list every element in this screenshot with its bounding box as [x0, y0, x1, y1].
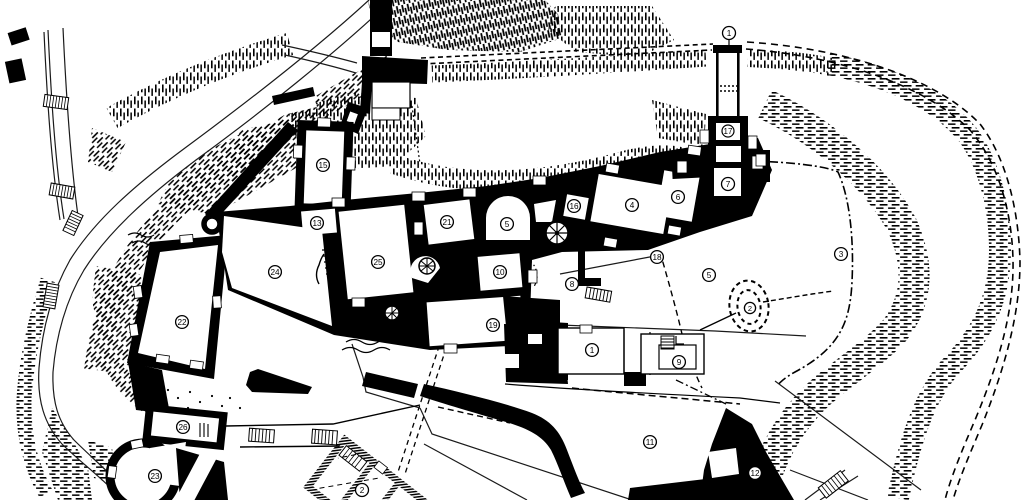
svg-text:26: 26	[178, 423, 188, 432]
svg-text:1: 1	[590, 346, 595, 355]
svg-text:2: 2	[360, 486, 365, 495]
svg-text:3: 3	[839, 250, 844, 259]
svg-text:13: 13	[312, 219, 322, 228]
svg-text:15: 15	[318, 161, 328, 170]
svg-text:16: 16	[569, 202, 579, 211]
svg-text:17: 17	[724, 127, 733, 136]
svg-text:5: 5	[505, 220, 510, 229]
svg-text:12: 12	[750, 469, 760, 478]
svg-text:24: 24	[270, 268, 280, 277]
svg-text:22: 22	[177, 318, 187, 327]
svg-text:8: 8	[570, 280, 575, 289]
svg-text:1: 1	[727, 29, 732, 38]
svg-text:18: 18	[652, 253, 662, 262]
svg-text:6: 6	[676, 193, 681, 202]
svg-text:4: 4	[630, 201, 635, 210]
svg-text:2: 2	[748, 304, 752, 313]
svg-text:9: 9	[677, 358, 682, 367]
svg-text:23: 23	[150, 472, 160, 481]
svg-text:25: 25	[373, 258, 383, 267]
svg-text:19: 19	[488, 321, 498, 330]
svg-text:21: 21	[442, 218, 452, 227]
svg-text:5: 5	[707, 271, 712, 280]
svg-text:11: 11	[646, 438, 655, 447]
svg-text:7: 7	[726, 180, 731, 189]
svg-text:10: 10	[495, 268, 505, 277]
